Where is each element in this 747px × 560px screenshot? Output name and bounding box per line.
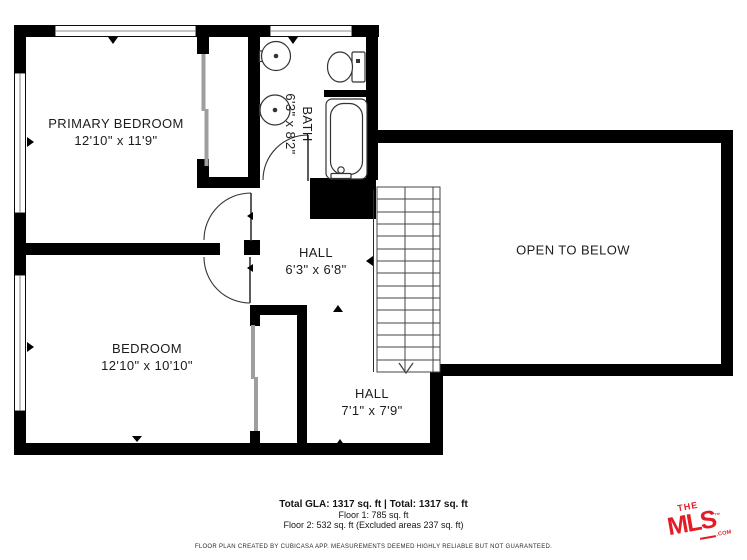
floor-plan-page: PRIMARY BEDROOM 12'10" x 11'9" BATH 6'3"… xyxy=(0,0,747,560)
room-label-open-to-below: OPEN TO BELOW xyxy=(516,242,630,259)
floor2-area-line: Floor 2: 532 sq. ft (Excluded areas 237 … xyxy=(0,520,747,530)
room-label-hall-lower: HALL 7'1" x 7'9" xyxy=(341,385,402,419)
room-dimensions: 7'1" x 7'9" xyxy=(341,402,402,419)
window-bedroom-left xyxy=(15,275,26,411)
stairs xyxy=(374,187,441,373)
room-label-hall-upper: HALL 6'3" x 6'8" xyxy=(285,244,346,278)
sliding-door-bedroom-closet xyxy=(251,325,258,431)
door-primary-bedroom xyxy=(204,193,251,241)
logo-underline xyxy=(700,535,716,540)
room-dimensions: 12'10" x 10'10" xyxy=(101,357,193,374)
window-primary-left xyxy=(15,73,26,213)
disclaimer-text: FLOOR PLAN CREATED BY CUBICASA APP. MEAS… xyxy=(0,544,747,550)
room-name: OPEN TO BELOW xyxy=(516,242,630,259)
logo-com-text: .COM xyxy=(716,530,732,538)
total-area-line: Total GLA: 1317 sq. ft | Total: 1317 sq.… xyxy=(0,499,747,510)
room-name: HALL xyxy=(341,385,402,402)
toilet-icon xyxy=(328,52,366,82)
area-summary: Total GLA: 1317 sq. ft | Total: 1317 sq.… xyxy=(0,499,747,530)
room-name: BEDROOM xyxy=(101,340,193,357)
window-bath-top xyxy=(270,26,352,37)
sliding-door-primary-closet xyxy=(202,54,209,166)
sink-icon xyxy=(260,42,291,71)
door-bedroom xyxy=(204,257,250,303)
floor1-area-line: Floor 1: 785 sq. ft xyxy=(0,510,747,520)
room-name: PRIMARY BEDROOM xyxy=(48,115,184,132)
bathtub-icon xyxy=(326,99,367,179)
room-name: BATH xyxy=(299,93,316,154)
room-dimensions: 12'10" x 11'9" xyxy=(48,132,184,149)
logo-trademark: ™ xyxy=(714,513,721,520)
room-name: HALL xyxy=(285,244,346,261)
room-label-bedroom: BEDROOM 12'10" x 10'10" xyxy=(101,340,193,374)
room-label-primary-bedroom: PRIMARY BEDROOM 12'10" x 11'9" xyxy=(48,115,184,149)
room-dimensions: 6'3" x 8'2" xyxy=(282,93,299,154)
window-primary-top xyxy=(55,26,196,37)
room-dimensions: 6'3" x 6'8" xyxy=(285,261,346,278)
room-label-bath: BATH 6'3" x 8'2" xyxy=(282,93,316,154)
